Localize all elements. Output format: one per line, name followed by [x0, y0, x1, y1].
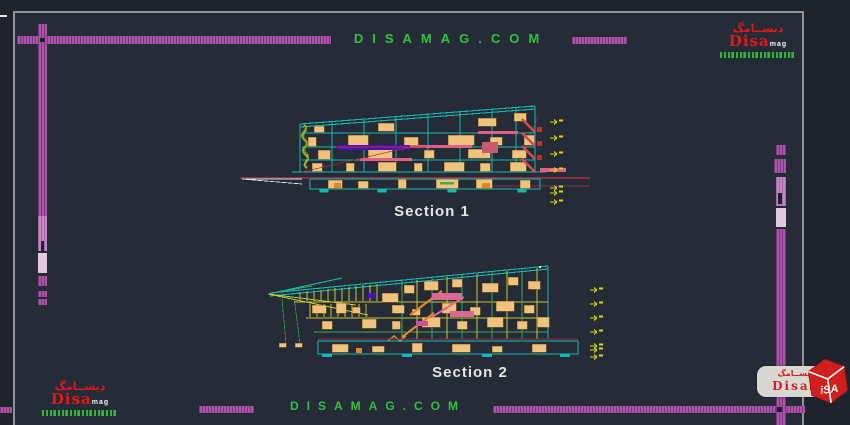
- section-1-label: Section 1: [394, 203, 470, 220]
- section-1-drawing: [228, 97, 596, 205]
- cad-sheet-viewport: DISAMAG.COM DISAMAG.COM ديســامگ Disamag…: [0, 0, 850, 425]
- ruler-right-notch: [778, 193, 782, 204]
- ruler-right-segment-pale: [776, 208, 786, 227]
- ruler-bar-bottom-edge: [0, 407, 12, 413]
- ruler-left-segment-pale: [38, 253, 47, 273]
- logo-script-row: [42, 410, 118, 416]
- logo-name: Disa: [729, 32, 770, 50]
- disamag-logo-top-right: ديســامگ Disamag: [714, 23, 802, 58]
- logo-suffix: mag: [770, 41, 787, 48]
- logo-name-row: Disamag: [714, 34, 802, 50]
- logo-script-row: [720, 52, 796, 58]
- ruler-bar-left-vertical: [38, 24, 47, 216]
- ruler-right-block-1: [776, 145, 786, 155]
- logo-suffix: mag: [92, 399, 109, 406]
- ruler-left-block-1: [38, 276, 47, 286]
- sheet-frame-top: [13, 11, 804, 13]
- ruler-right-block-2: [774, 159, 786, 173]
- sheet-frame-left: [13, 11, 15, 425]
- ruler-cross-dot-bottom-right: [777, 407, 782, 412]
- ruler-cross-dot-top-left: [40, 38, 45, 42]
- level-annotations: [550, 120, 563, 205]
- ruler-bar-bottom-right: [493, 406, 805, 413]
- ruler-bar-bottom-left: [199, 406, 254, 413]
- level-annotations: [590, 288, 603, 360]
- ruler-left-notch: [41, 241, 44, 251]
- watermark-name: Disa: [772, 379, 810, 393]
- isa-cube-monogram: iSA: [819, 383, 839, 397]
- screen-edge-artifact: [0, 15, 7, 17]
- ruler-bar-top-horizontal: [17, 36, 331, 44]
- site-url-top: DISAMAG.COM: [354, 31, 548, 46]
- disamag-logo-bottom-left: ديســامگ Disamag: [36, 381, 124, 416]
- site-url-bottom: DISAMAG.COM: [290, 399, 466, 413]
- ruler-left-block-2: [38, 291, 47, 297]
- section-2-drawing: [252, 255, 612, 370]
- logo-name: Disa: [51, 390, 92, 408]
- ruler-bar-top-right: [572, 37, 627, 44]
- section-2-label: Section 2: [432, 364, 508, 381]
- logo-name-row: Disamag: [36, 392, 124, 408]
- ruler-left-block-3: [38, 299, 47, 305]
- sheet-frame-right: [802, 11, 804, 425]
- ground-lines: [240, 116, 590, 186]
- isa-cube-logo: iSA: [806, 355, 850, 407]
